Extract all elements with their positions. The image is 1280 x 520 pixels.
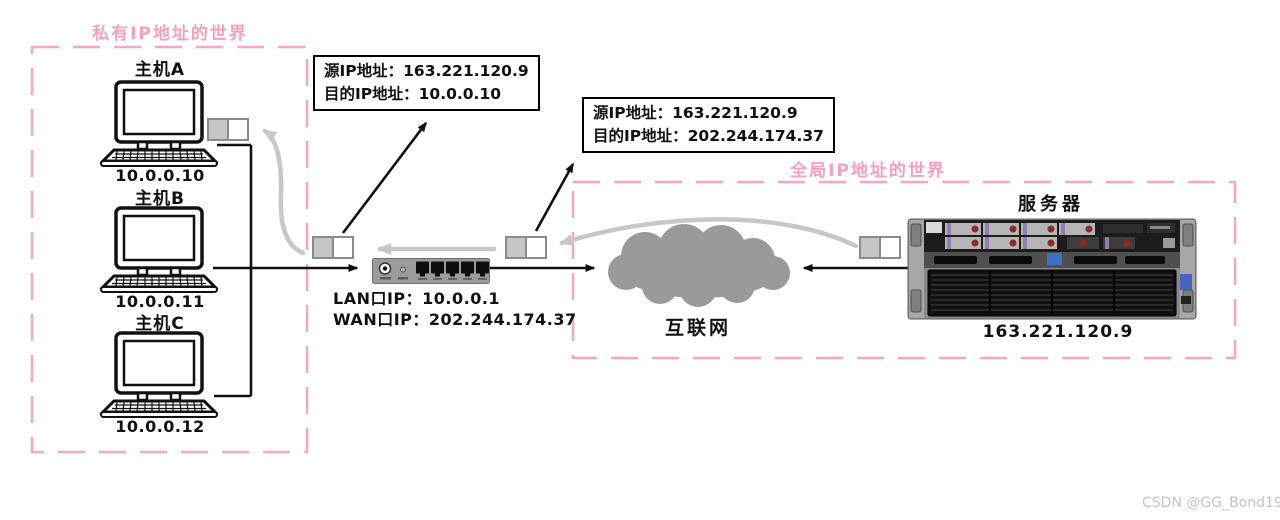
host-c-computer-figure [99, 331, 219, 419]
host-a-name: 主机A [100, 55, 220, 80]
packet-header-square [505, 236, 527, 259]
host-c-ip: 10.0.0.12 [100, 417, 220, 436]
router-wan-ip-label: WAN口IP：202.244.174.37 [333, 306, 577, 330]
packet-data-square [525, 236, 547, 259]
internet-cloud [608, 224, 790, 307]
packet-header-square [859, 236, 881, 259]
packet-src-ip: 源IP地址：163.221.120.9 [593, 102, 824, 125]
packet-icon-wan-side [505, 236, 547, 259]
packet-data-square [332, 236, 354, 259]
watermark: CSDN @GG_Bond19 [1142, 495, 1280, 511]
return-arrow-to-host-a [265, 131, 303, 253]
packet-address-box-2: 源IP地址：163.221.120.9 目的IP地址：202.244.174.3… [582, 97, 835, 153]
packet-address-box-1: 源IP地址：163.221.120.9 目的IP地址：10.0.0.10 [313, 55, 540, 111]
packet-dst-ip: 目的IP地址：202.244.174.37 [593, 125, 824, 148]
nat-annotation-arrow-2 [536, 164, 573, 231]
packet-data-square [227, 118, 249, 141]
packet-icon-host-a [207, 118, 249, 141]
packet-icon-lan-side [312, 236, 354, 259]
packet-src-ip: 源IP地址：163.221.120.9 [324, 60, 529, 83]
host-b-computer-figure [99, 206, 219, 294]
host-a-computer-figure [99, 80, 219, 168]
nat-network-diagram: 私有IP地址的世界 主机A 10.0.0.10 主机B [0, 0, 1280, 520]
server-ip: 163.221.120.9 [958, 322, 1158, 342]
packet-icon-server-side [859, 236, 901, 259]
private-zone-title: 私有IP地址的世界 [36, 19, 304, 44]
packet-data-square [879, 236, 901, 259]
server-vga-port [1180, 274, 1192, 290]
internet-label: 互联网 [648, 313, 748, 340]
nat-annotation-arrow-1 [343, 123, 426, 233]
router-reset-button [401, 267, 406, 272]
router-figure [372, 258, 490, 284]
packet-dst-ip: 目的IP地址：10.0.0.10 [324, 83, 529, 106]
server-title: 服务器 [976, 190, 1126, 216]
packet-header-square [312, 236, 334, 259]
host-a-ip: 10.0.0.10 [100, 166, 220, 185]
packet-header-square [207, 118, 229, 141]
server-figure [907, 218, 1197, 320]
global-zone-title: 全局IP地址的世界 [738, 156, 998, 181]
